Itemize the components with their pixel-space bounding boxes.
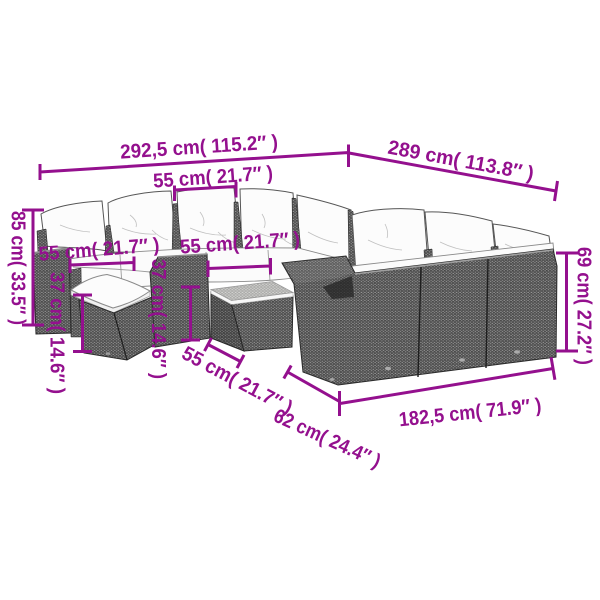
svg-text:37 cm( 14.6″ ): 37 cm( 14.6″ ) [147,259,169,379]
svg-text:85 cm( 33.5″ ): 85 cm( 33.5″ ) [7,211,29,325]
svg-text:69 cm( 27.2″ ): 69 cm( 27.2″ ) [573,247,595,365]
svg-text:37 cm( 14.6″ ): 37 cm( 14.6″ ) [46,272,68,394]
